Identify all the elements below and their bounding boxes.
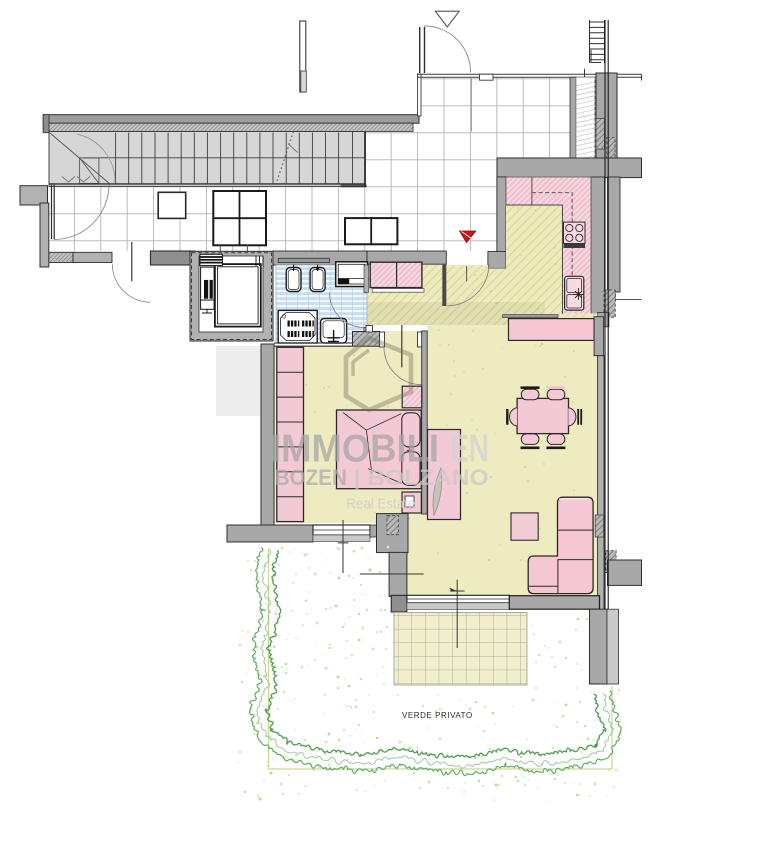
svg-text:| BOLZANO: | BOLZANO <box>354 465 489 490</box>
svg-text:EN: EN <box>450 427 489 470</box>
svg-text:BOZEN: BOZEN <box>275 465 347 490</box>
svg-text:Real Estate: Real Estate <box>346 497 415 513</box>
svg-text:VERDE PRIVATO: VERDE PRIVATO <box>402 711 473 720</box>
svg-text:IMMOBILI: IMMOBILI <box>271 427 439 470</box>
